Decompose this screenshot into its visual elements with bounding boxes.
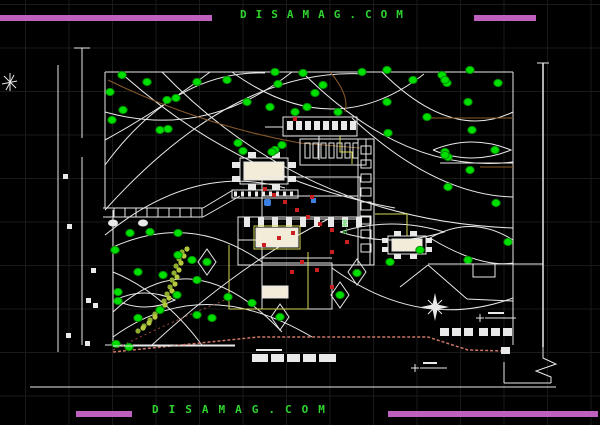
red-fixture	[263, 187, 267, 191]
tree	[464, 256, 472, 263]
red-fixture	[318, 222, 322, 226]
red-fixture	[295, 208, 299, 212]
tree	[159, 271, 167, 278]
tree	[239, 147, 247, 154]
top-left-symbol	[2, 73, 17, 91]
dim-text-mark	[85, 341, 90, 346]
tree	[193, 311, 201, 318]
red-fixture	[330, 285, 334, 289]
stepping-stone	[184, 246, 189, 251]
parking-row	[440, 328, 512, 336]
tree	[409, 76, 417, 83]
parking-stall	[503, 328, 512, 336]
tree	[274, 80, 282, 87]
blue-fixtures	[264, 198, 316, 206]
red-fixture	[283, 200, 287, 204]
dim-text-mark	[63, 174, 68, 179]
tree	[164, 125, 172, 132]
tree	[278, 141, 286, 148]
tree	[383, 98, 391, 105]
tree	[114, 297, 122, 304]
stepping-stone	[178, 260, 183, 265]
tree	[271, 68, 279, 75]
parking-stall	[479, 328, 488, 336]
parking-stall	[452, 328, 461, 336]
tree	[441, 76, 449, 83]
red-fixture	[293, 117, 297, 121]
red-fixture	[330, 250, 334, 254]
tree	[224, 293, 232, 300]
tree	[114, 288, 122, 295]
dim-text-mark	[67, 224, 72, 229]
tree	[112, 340, 120, 347]
tree	[383, 66, 391, 73]
tree	[464, 98, 472, 105]
parking-stall	[440, 328, 449, 336]
scale-bar	[252, 349, 336, 362]
tree	[303, 103, 311, 110]
elevation-markers	[411, 312, 516, 372]
tree	[466, 66, 474, 73]
red-fixture	[300, 260, 304, 264]
elevation-label: 0.00	[342, 219, 349, 234]
tree	[163, 96, 171, 103]
tree	[243, 98, 251, 105]
tree	[441, 151, 449, 158]
stepping-stone	[152, 314, 157, 319]
tree	[491, 146, 499, 153]
tree	[174, 229, 182, 236]
tree	[492, 199, 500, 206]
red-fixture	[310, 195, 314, 199]
tree	[276, 313, 284, 320]
tree	[234, 139, 242, 146]
tree	[353, 269, 361, 276]
tree	[125, 343, 133, 350]
red-fixture	[290, 270, 294, 274]
parking-stall	[464, 328, 473, 336]
stepping-stone	[166, 295, 171, 300]
tree	[319, 81, 327, 88]
parking-stall	[491, 328, 500, 336]
tree	[118, 71, 126, 78]
tree	[203, 258, 211, 265]
stepping-stone	[176, 267, 181, 272]
tree	[299, 69, 307, 76]
tree	[174, 251, 182, 258]
red-fixture	[272, 193, 276, 197]
red-fixture	[315, 268, 319, 272]
tree	[134, 268, 142, 275]
dim-text-mark	[93, 303, 98, 308]
building-a	[232, 152, 298, 198]
tree	[384, 129, 392, 136]
tree	[126, 229, 134, 236]
tree	[266, 103, 274, 110]
tree	[111, 246, 119, 253]
stepping-stone	[174, 274, 179, 279]
site-plan-drawing: 0.00	[0, 0, 600, 425]
tree	[468, 126, 476, 133]
cad-site-plan-screenshot: DISAMAG.COM DISAMAG.COM	[0, 0, 600, 425]
tree	[193, 78, 201, 85]
red-fixture	[330, 228, 334, 232]
tree	[444, 183, 452, 190]
stepping-stone	[135, 328, 140, 333]
tree	[108, 116, 116, 123]
tree	[172, 94, 180, 101]
tree	[223, 76, 231, 83]
tree	[156, 126, 164, 133]
tree	[504, 238, 512, 245]
red-fixture	[291, 231, 295, 235]
red-fixture	[277, 236, 281, 240]
red-fixture	[345, 240, 349, 244]
stepping-stone	[172, 281, 177, 286]
bottom-road-lines	[30, 264, 556, 387]
north-arrow	[421, 293, 449, 321]
tree	[336, 291, 344, 298]
tree	[248, 299, 256, 306]
tree	[173, 291, 181, 298]
dim-text-mark	[66, 333, 71, 338]
tree	[358, 68, 366, 75]
tree	[208, 314, 216, 321]
stepping-stone	[140, 325, 145, 330]
red-fixture	[262, 243, 266, 247]
red-fixture	[306, 215, 310, 219]
tree	[423, 113, 431, 120]
tree	[466, 166, 474, 173]
dimension-marks-layer	[63, 174, 98, 346]
stepping-stone	[162, 302, 167, 307]
tree	[119, 106, 127, 113]
dim-text-mark	[91, 268, 96, 273]
tree	[334, 108, 342, 115]
tree	[268, 148, 276, 155]
tree	[188, 256, 196, 263]
tree	[143, 78, 151, 85]
dimension-lines-left	[58, 48, 90, 352]
tree	[416, 246, 424, 253]
tree	[386, 258, 394, 265]
tree	[134, 314, 142, 321]
tree	[156, 306, 164, 313]
tree	[193, 276, 201, 283]
dim-text-mark	[86, 298, 91, 303]
tree	[311, 89, 319, 96]
stepping-stone	[146, 320, 151, 325]
tree	[106, 88, 114, 95]
tree	[494, 79, 502, 86]
tree	[291, 108, 299, 115]
tree	[146, 228, 154, 235]
